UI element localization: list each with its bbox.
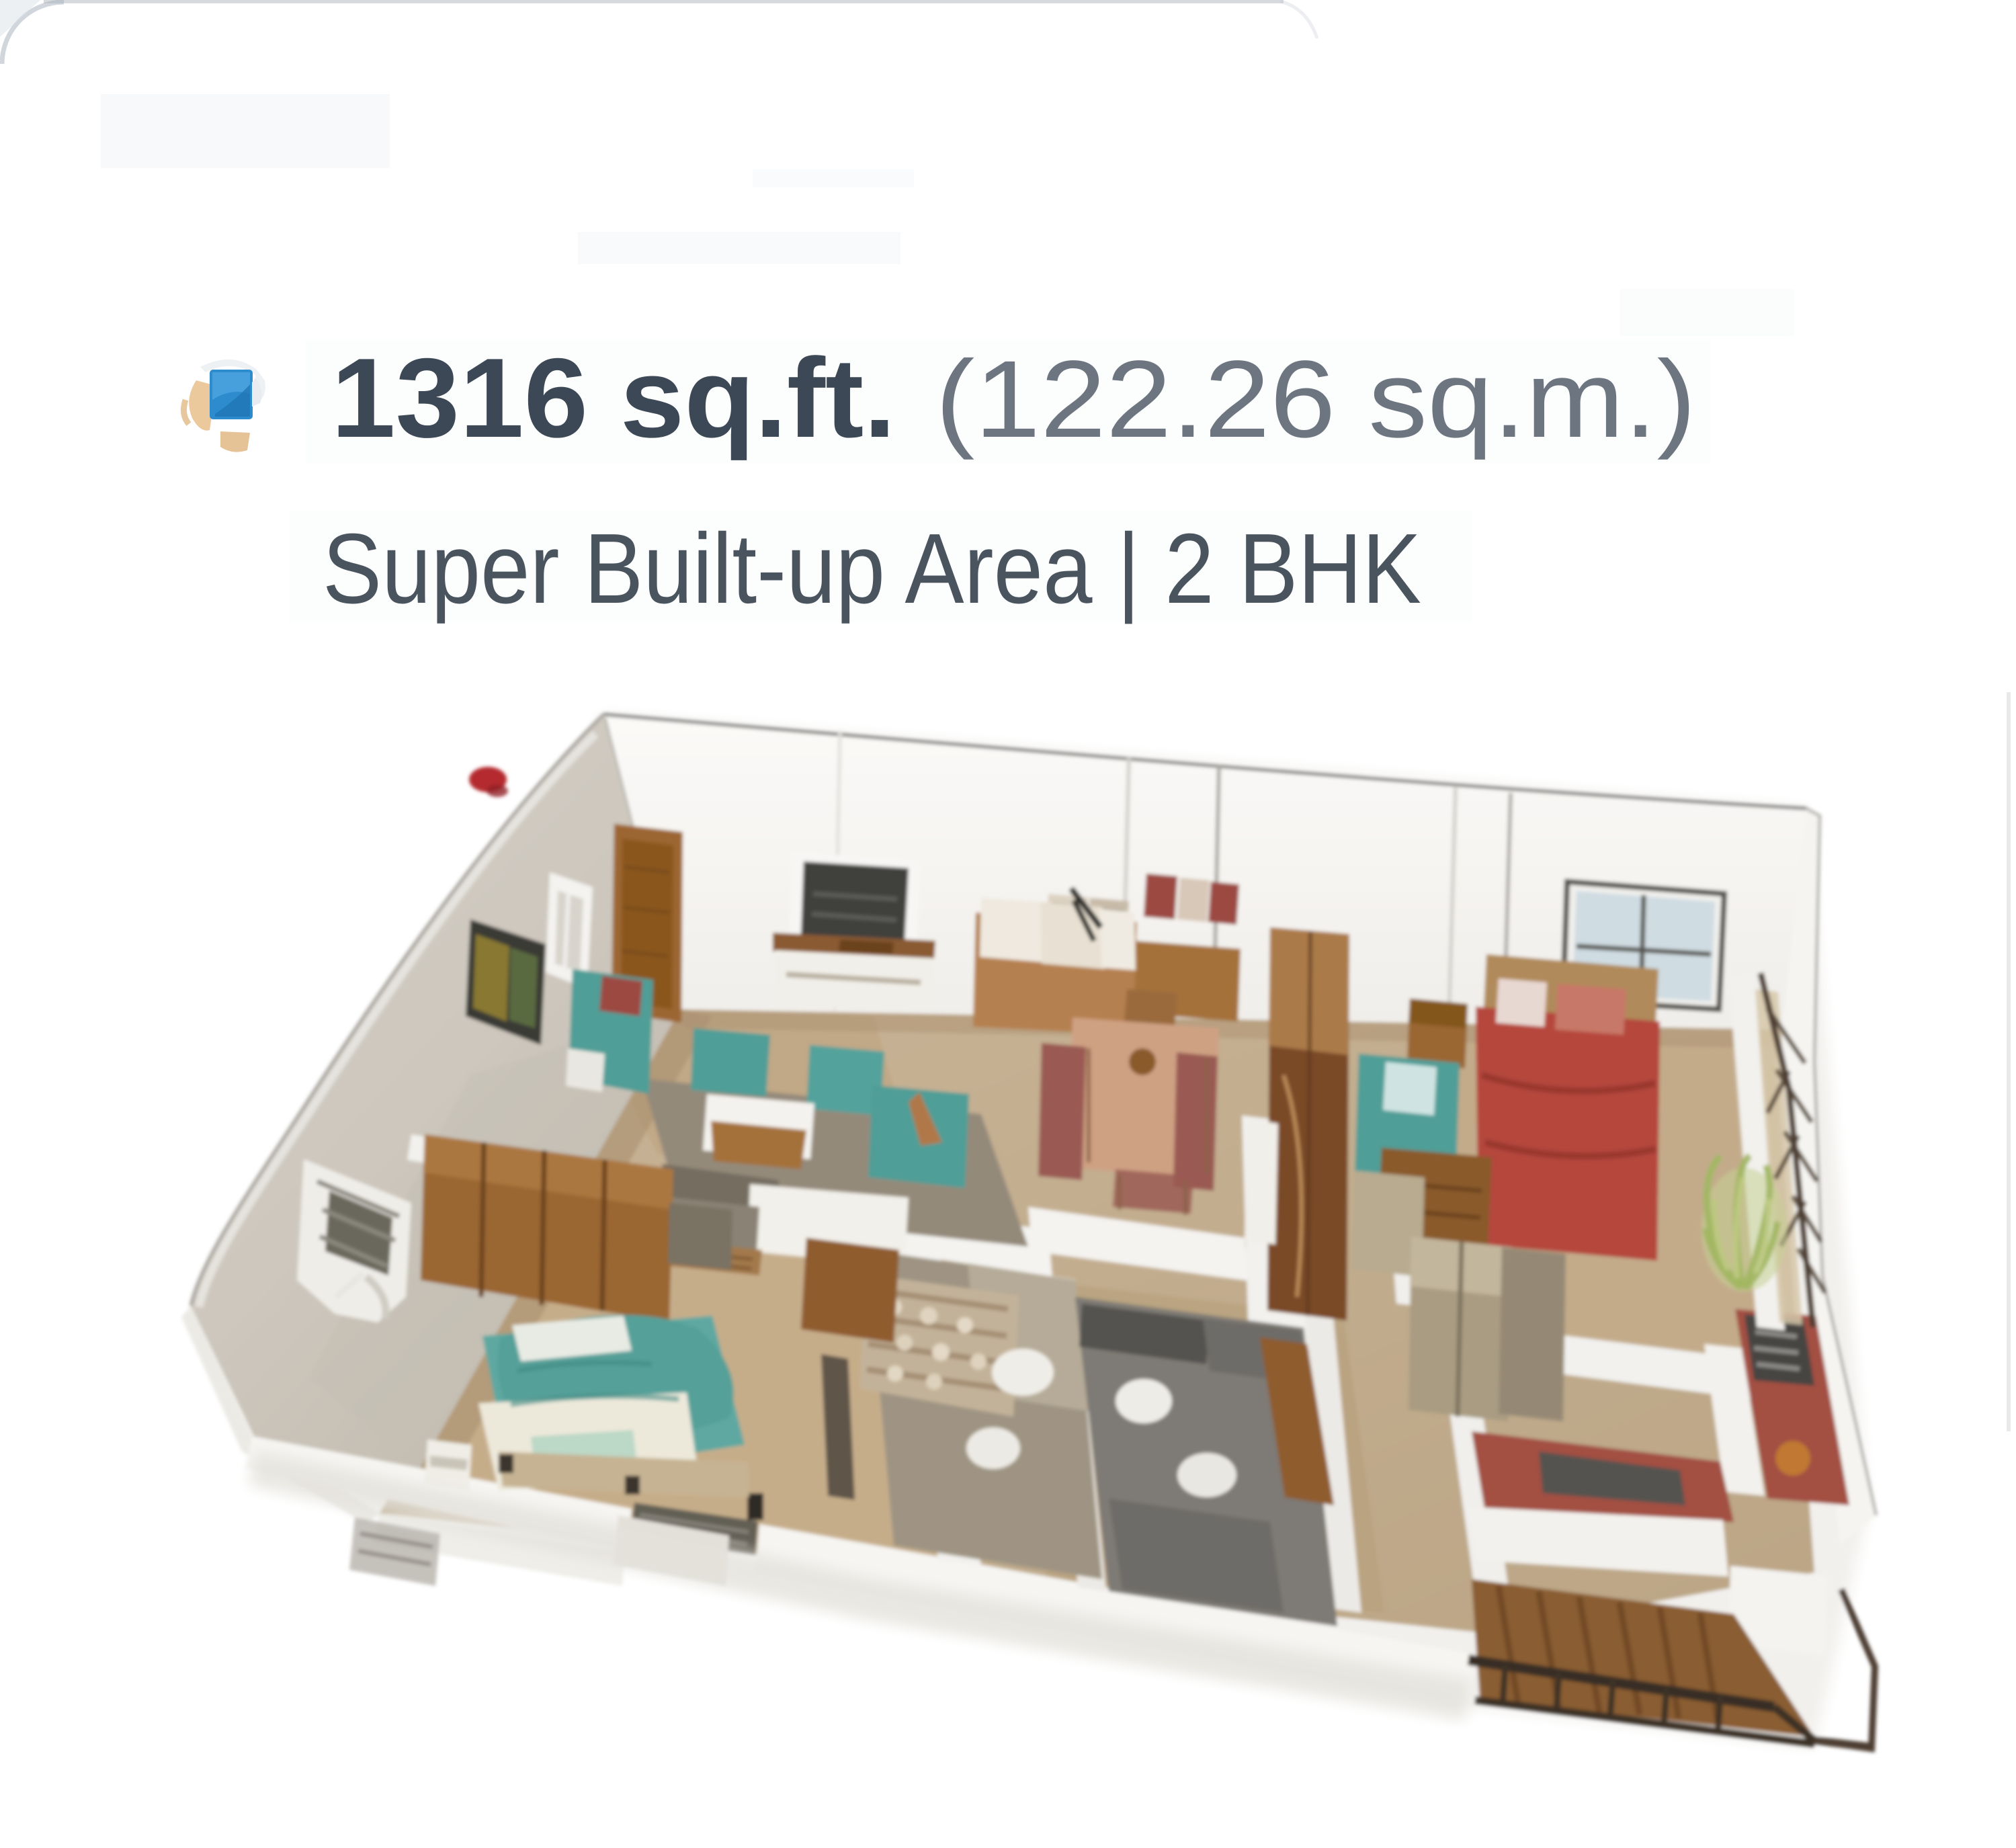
svg-text:1316 sq.ft.: 1316 sq.ft. — [331, 335, 896, 461]
svg-text:Super Built-up Area | 2 BHK: Super Built-up Area | 2 BHK — [323, 513, 1421, 624]
svg-text:(122.26 sq.m.): (122.26 sq.m.) — [935, 337, 1696, 460]
